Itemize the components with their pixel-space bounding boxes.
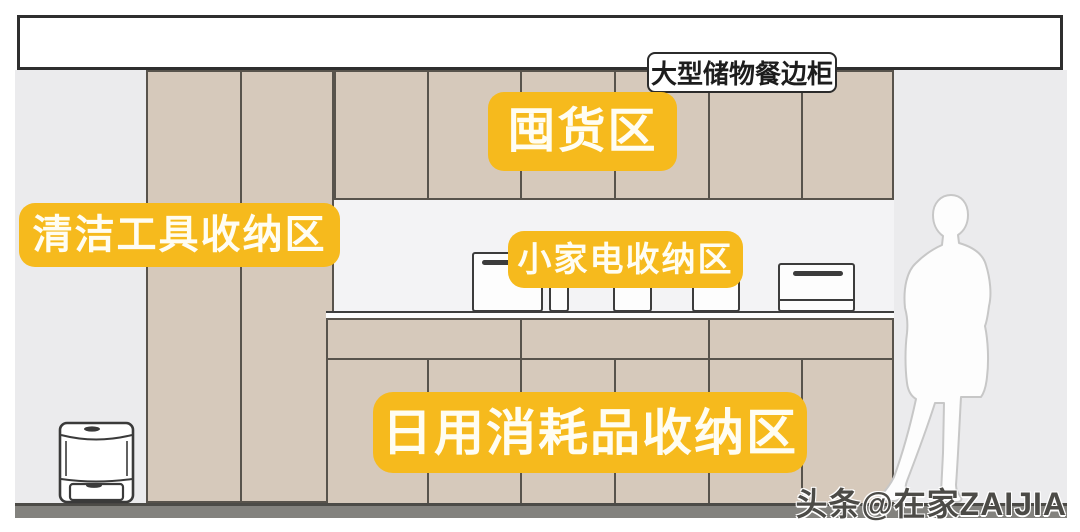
tall-cabinet	[146, 70, 334, 503]
drawer-divider	[708, 320, 710, 358]
person-silhouette	[875, 193, 995, 505]
trash-bin	[58, 421, 136, 504]
watermark-text: 头条@在家ZAIJIA	[795, 486, 1067, 522]
drawer-divider	[520, 320, 522, 358]
upper-door-divider	[427, 72, 429, 198]
zone-label-text: 日用消耗品收纳区	[382, 408, 798, 458]
zone-label-text: 囤货区	[507, 108, 657, 156]
zone-label-daily-consumables: 日用消耗品收纳区	[373, 392, 807, 473]
zone-label-stockpile: 囤货区	[488, 92, 677, 171]
drawer-row	[326, 320, 894, 360]
ceiling-soffit	[17, 15, 1063, 70]
tall-cabinet-door-divider	[240, 72, 242, 501]
countertop	[326, 311, 894, 320]
zone-label-text: 清洁工具收纳区	[33, 215, 327, 255]
zone-label-cleaning-tools: 清洁工具收纳区	[19, 203, 340, 267]
title-callout: 大型储物餐边柜	[647, 52, 837, 93]
countertop-oven	[778, 263, 855, 312]
zone-label-text: 小家电收纳区	[518, 243, 734, 277]
zone-label-small-appliance: 小家电收纳区	[508, 231, 743, 288]
watermark: 头条@在家ZAIJIA	[795, 479, 1067, 525]
appliance-handle	[793, 271, 843, 276]
oven-base-line	[780, 299, 853, 301]
title-callout-text: 大型储物餐边柜	[651, 54, 833, 91]
